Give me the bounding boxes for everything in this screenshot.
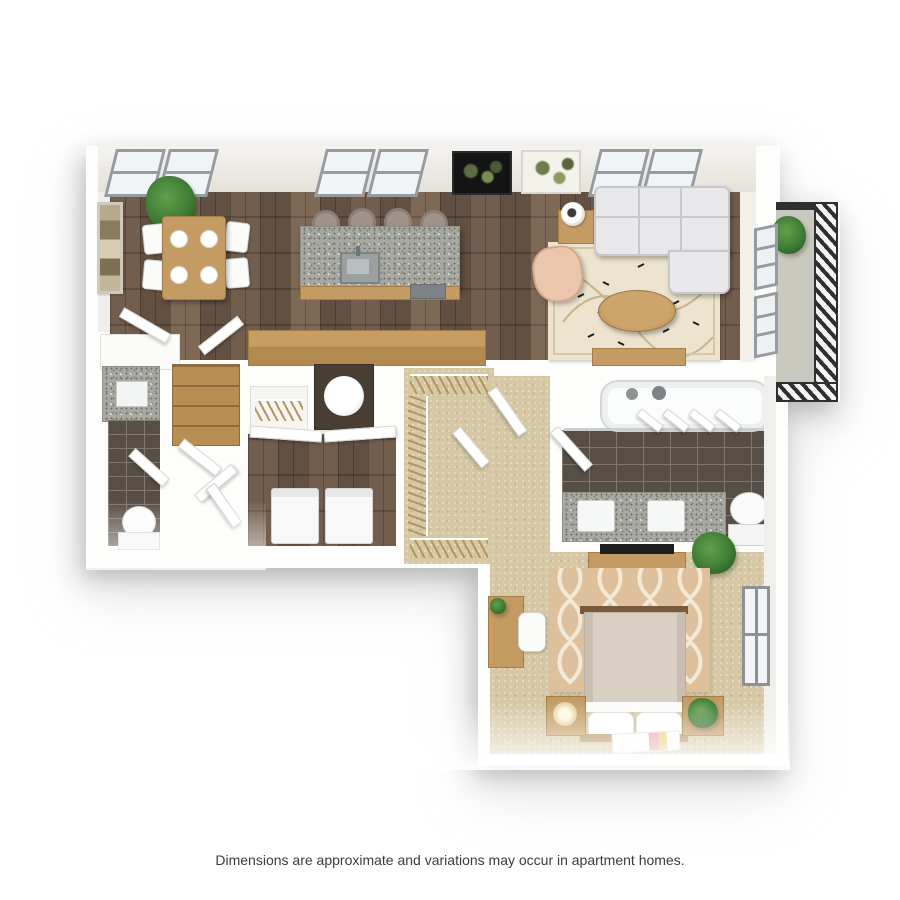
dryer <box>325 488 373 544</box>
kitchen-island <box>300 226 460 290</box>
faucet <box>356 246 360 256</box>
kitchen-counter <box>248 330 486 366</box>
bathroom1-sink <box>116 381 148 407</box>
bed-duvet <box>584 612 686 708</box>
plate <box>170 266 188 284</box>
window-icon <box>754 291 778 358</box>
picture-frame <box>97 202 123 294</box>
bedroom-right-wall-face <box>764 376 776 754</box>
sofa-chaise <box>668 250 730 294</box>
vanity-sink <box>647 500 685 532</box>
bed-sheet-fold <box>584 702 684 712</box>
dining-chair <box>223 221 250 254</box>
tv-console <box>592 348 686 366</box>
hanger-rod <box>410 374 488 394</box>
wall-art-light <box>521 150 581 194</box>
wall-art-dark <box>452 151 512 195</box>
dining-chair <box>224 257 251 289</box>
disclaimer-text: Dimensions are approximate and variation… <box>0 852 900 868</box>
desk-chair <box>518 612 546 652</box>
hanger-rod <box>410 538 488 558</box>
sink-basin <box>347 259 369 274</box>
dining-table <box>162 216 226 300</box>
tv <box>600 544 674 554</box>
hanger-rod <box>408 396 428 536</box>
window-icon <box>754 223 778 290</box>
bed <box>580 606 688 742</box>
coffee-table <box>598 290 676 332</box>
linen-closet <box>250 386 308 430</box>
washer <box>271 488 319 544</box>
plate <box>170 230 188 248</box>
bathroom1-vanity <box>102 366 160 422</box>
water-heater <box>324 376 364 416</box>
plate <box>200 230 218 248</box>
dishwasher <box>410 284 446 299</box>
utility-closet <box>314 364 374 430</box>
balcony-railing <box>814 202 838 402</box>
desk-plant <box>490 598 506 614</box>
floor-plan <box>0 0 900 900</box>
toilet <box>730 492 768 526</box>
toilet-tank <box>118 532 160 550</box>
vanity-sink <box>577 500 615 532</box>
closet-organizer <box>172 364 240 446</box>
table-lamp <box>561 202 585 226</box>
plate <box>200 266 218 284</box>
hanger-rod <box>255 399 303 421</box>
balcony-railing <box>776 382 838 402</box>
shower-head <box>626 388 638 400</box>
sofa-sectional <box>594 186 730 256</box>
magazine <box>612 730 681 754</box>
kitchen-sink <box>340 252 380 284</box>
shower-valve <box>652 386 666 400</box>
window-icon <box>742 586 770 686</box>
bedside-lamp <box>553 702 577 726</box>
nightstand-plant <box>688 698 718 728</box>
